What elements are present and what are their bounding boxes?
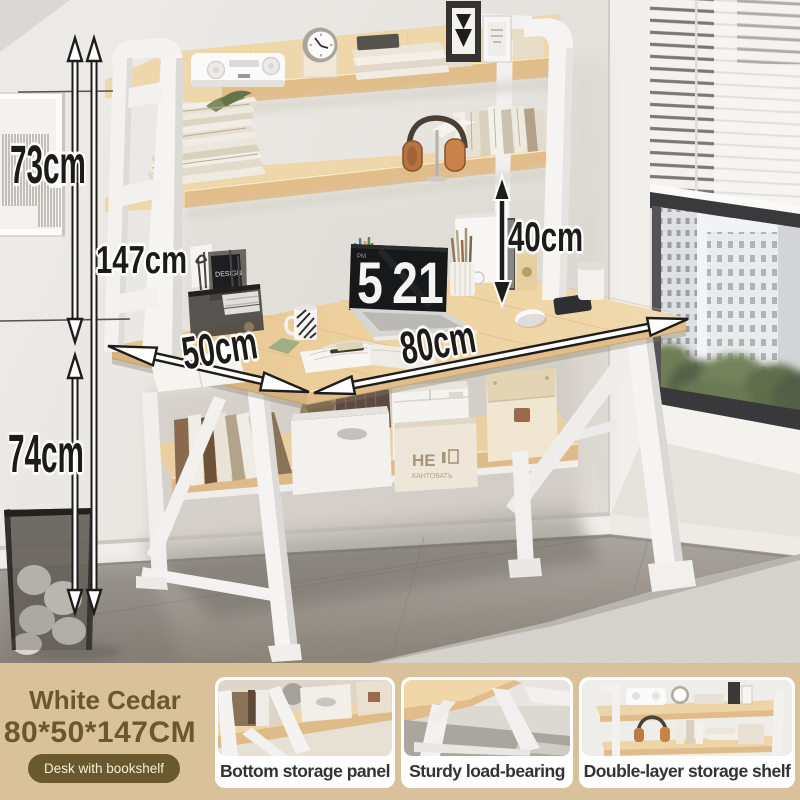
svg-text:5: 5 (357, 251, 383, 316)
svg-text:HE: HE (412, 451, 436, 470)
svg-text:PM: PM (357, 254, 366, 260)
svg-text:КАНТОВАТЬ: КАНТОВАТЬ (412, 473, 453, 480)
svg-text:21: 21 (392, 251, 444, 316)
